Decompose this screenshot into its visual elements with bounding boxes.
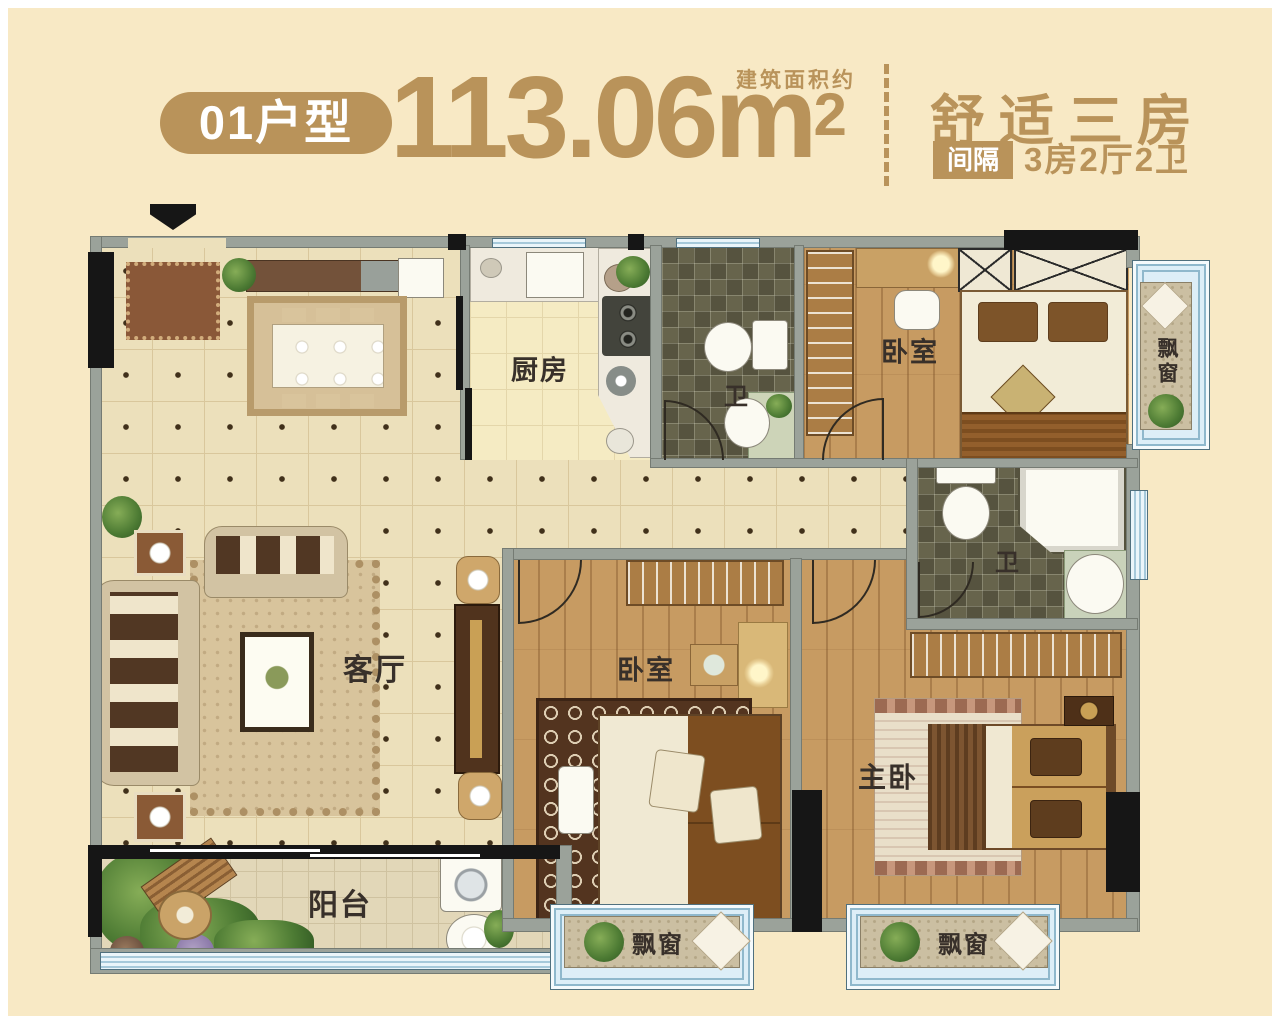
plant-icon [222, 258, 256, 292]
room-label-master: 主卧 [858, 756, 918, 796]
floorplan-page: 01户型 113.06m2 建筑面积约 舒适三房 间隔 3房2厅2卫 [0, 0, 1280, 1024]
toilet-tank [752, 320, 788, 370]
room-label-bedroom-mid: 卧室 [617, 649, 675, 688]
layout-text: 3房2厅2卫 [1024, 141, 1190, 179]
wall-bath-mid-left [906, 458, 918, 630]
sliding-door-track [150, 849, 320, 852]
bed-pillow [1048, 302, 1108, 342]
room-label-bedroom-top: 卧室 [881, 331, 939, 370]
loveseat-pillows [216, 536, 334, 574]
kitchen-dish [480, 258, 502, 278]
desk-lamp [744, 658, 774, 688]
balcony-table [158, 890, 212, 940]
wall-kitchen-bath [650, 245, 662, 465]
layout-badge: 间隔 [933, 141, 1013, 179]
wall-column [88, 252, 114, 368]
plant-icon [1148, 394, 1184, 428]
wardrobe [626, 560, 784, 606]
entrance-opening [128, 238, 226, 248]
wall-corridor-bottom [502, 548, 908, 560]
balcony-window [100, 952, 552, 970]
kitchen-sink [526, 252, 584, 298]
wall-bath-mid-bottom [906, 618, 1138, 630]
bed-pillow [1030, 800, 1082, 838]
room-label-bay-bottom-right: 飘窗 [938, 925, 990, 960]
stool [894, 290, 940, 330]
room-label-kitchen: 厨房 [511, 349, 569, 388]
bath-mid-window [1130, 490, 1148, 580]
bath-top-window [676, 238, 760, 248]
bench [558, 766, 594, 834]
kitchen-pot [606, 366, 636, 396]
toilet-bowl [942, 486, 990, 540]
closet-box [1014, 248, 1128, 292]
kitchen-sliding-door [465, 388, 472, 460]
wall-column [1106, 792, 1140, 892]
bed-pillow [709, 786, 762, 845]
dining-table [272, 324, 384, 388]
toilet-bowl [704, 322, 752, 372]
kitchen-window [492, 238, 586, 248]
long-sofa-pillows [110, 592, 178, 772]
wardrobe [806, 250, 854, 436]
wall-column [88, 845, 102, 937]
bed-pillow [1030, 738, 1082, 776]
stove-icon [602, 296, 654, 356]
header-divider [884, 64, 889, 186]
master-bed-foot-blanket [928, 724, 986, 850]
entry-cabinet [398, 258, 444, 298]
room-label-balcony: 阳台 [308, 880, 372, 924]
desk-lamp [926, 250, 956, 278]
bed-pillow [978, 302, 1038, 342]
room-label-bay-bottom-left: 飘窗 [632, 925, 684, 960]
wall-column [448, 234, 466, 250]
nightstand [1064, 696, 1114, 726]
coffee-table [240, 632, 314, 732]
wall-column [628, 234, 644, 250]
bed-pillow [648, 749, 706, 813]
kitchen-bowl [606, 428, 634, 454]
wardrobe [910, 632, 1122, 678]
kitchen-sliding-door [456, 296, 463, 390]
wall-column [792, 790, 822, 932]
plant-icon [584, 922, 624, 962]
side-table-lamp [134, 792, 186, 842]
plant-icon [616, 256, 650, 288]
room-label-bay-right: 飘窗 [1151, 337, 1181, 387]
closet-box [958, 248, 1012, 292]
wall-top [90, 236, 1138, 248]
bath-mid-sink [1066, 554, 1124, 614]
unit-badge: 01户型 [160, 92, 392, 154]
side-table-lamp [134, 530, 186, 576]
sliding-door-track [310, 854, 480, 857]
bed-blanket [962, 412, 1126, 460]
room-label-living: 客厅 [343, 645, 407, 689]
plant-icon [766, 394, 792, 418]
area-note: 建筑面积约 [736, 64, 856, 94]
nightstand [690, 644, 738, 686]
dining-chairs-top [282, 308, 378, 322]
tv-console-handle [470, 620, 482, 758]
room-label-bath-mid: 卫 [995, 543, 1021, 578]
wall-bedroom-mid-left [502, 548, 514, 932]
wall-column [1004, 230, 1138, 250]
room-label-bath-top: 卫 [724, 377, 750, 412]
plant-icon [880, 922, 920, 962]
washing-machine [440, 852, 502, 912]
console-lamp-table [456, 556, 500, 604]
dining-chairs-bottom [282, 394, 378, 408]
entry-rug [126, 262, 220, 340]
wall-bath-bedroom [794, 245, 804, 467]
console-lamp-table [458, 772, 502, 820]
